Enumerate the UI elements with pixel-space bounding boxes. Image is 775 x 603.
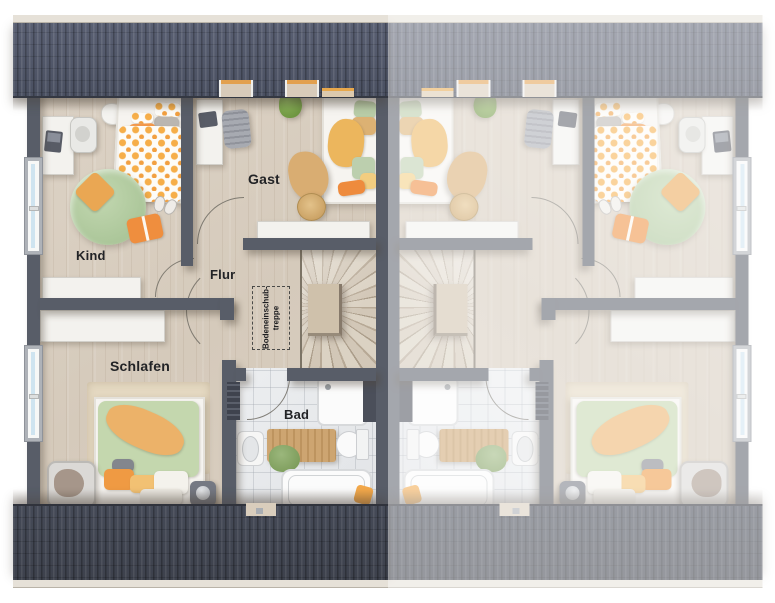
room-label-gast: Gast [248, 171, 280, 187]
pillow-orange [337, 179, 366, 197]
room-label-kind: Kind [76, 248, 106, 263]
towel-green [269, 445, 300, 472]
note-line2: treppe [271, 287, 281, 349]
wall-stub-schlafen-door [220, 298, 234, 320]
laptop-kind [44, 130, 63, 153]
lounge-chair-gast [221, 109, 252, 150]
left-unit-half: Bodeneinschub- treppe Kind Gast Flur Sch… [0, 0, 388, 603]
wall-bad-top-left [236, 368, 246, 381]
radiator [227, 382, 240, 420]
room-label-bad: Bad [284, 407, 309, 422]
stair-rail [300, 250, 302, 371]
room-label-schlafen: Schlafen [110, 358, 170, 374]
party-wall [376, 90, 388, 507]
wall-kind-flur [181, 90, 193, 266]
outer-wall-left [27, 90, 40, 507]
attic-ladder-note-text: Bodeneinschub- treppe [261, 287, 280, 349]
laptop-gast [198, 111, 218, 128]
cushion-ribbon [141, 216, 149, 241]
roof-ridge-edge-top [13, 15, 388, 23]
winder-staircase [300, 250, 378, 371]
roof-dormer-window [285, 80, 319, 97]
toilet-tank [356, 429, 369, 460]
window-handle [29, 206, 39, 211]
roof-ridge-edge-bottom [13, 580, 388, 588]
floorplan-duplex-upper-floor: Bodeneinschub- treppe Kind Gast Flur Sch… [0, 0, 775, 603]
window-handle [29, 394, 39, 399]
stair-center-column [308, 284, 342, 336]
chair-seat [75, 126, 90, 142]
wardrobe-schlafen [40, 310, 165, 342]
vent-cap [256, 508, 263, 514]
office-chair-kind [70, 117, 97, 153]
shower-drain [325, 384, 331, 390]
roof-shadow [13, 489, 388, 504]
roof-chimney-notch [246, 503, 276, 516]
room-label-flur: Flur [210, 267, 235, 282]
shower-tray [317, 376, 368, 426]
roof-bottom [13, 504, 388, 582]
fade-overlay [388, 0, 775, 603]
sink [237, 431, 264, 466]
window-kind [24, 157, 43, 255]
attic-ladder-note: Bodeneinschub- treppe [252, 286, 290, 350]
laptop-screen [47, 132, 61, 142]
wicker-pouf [297, 193, 326, 221]
wall-bad-top [287, 368, 376, 381]
right-unit-half: Bodeneinschub- treppe Kind Gast Flur Sch… [388, 0, 775, 603]
note-line1: Bodeneinschub- [261, 287, 271, 349]
roof-shadow [13, 96, 388, 111]
floorplan-unit: Bodeneinschub- treppe Kind Gast Flur Sch… [0, 0, 388, 603]
roof-dormer-window [219, 80, 253, 97]
sink-basin [242, 436, 259, 462]
roof-window-sill [322, 88, 354, 97]
window-schlafen [24, 345, 43, 442]
wall-kind-schlafen [40, 298, 232, 310]
wall-gast-flur [243, 238, 376, 250]
roof-top [13, 21, 388, 98]
bed-gast [322, 95, 381, 204]
